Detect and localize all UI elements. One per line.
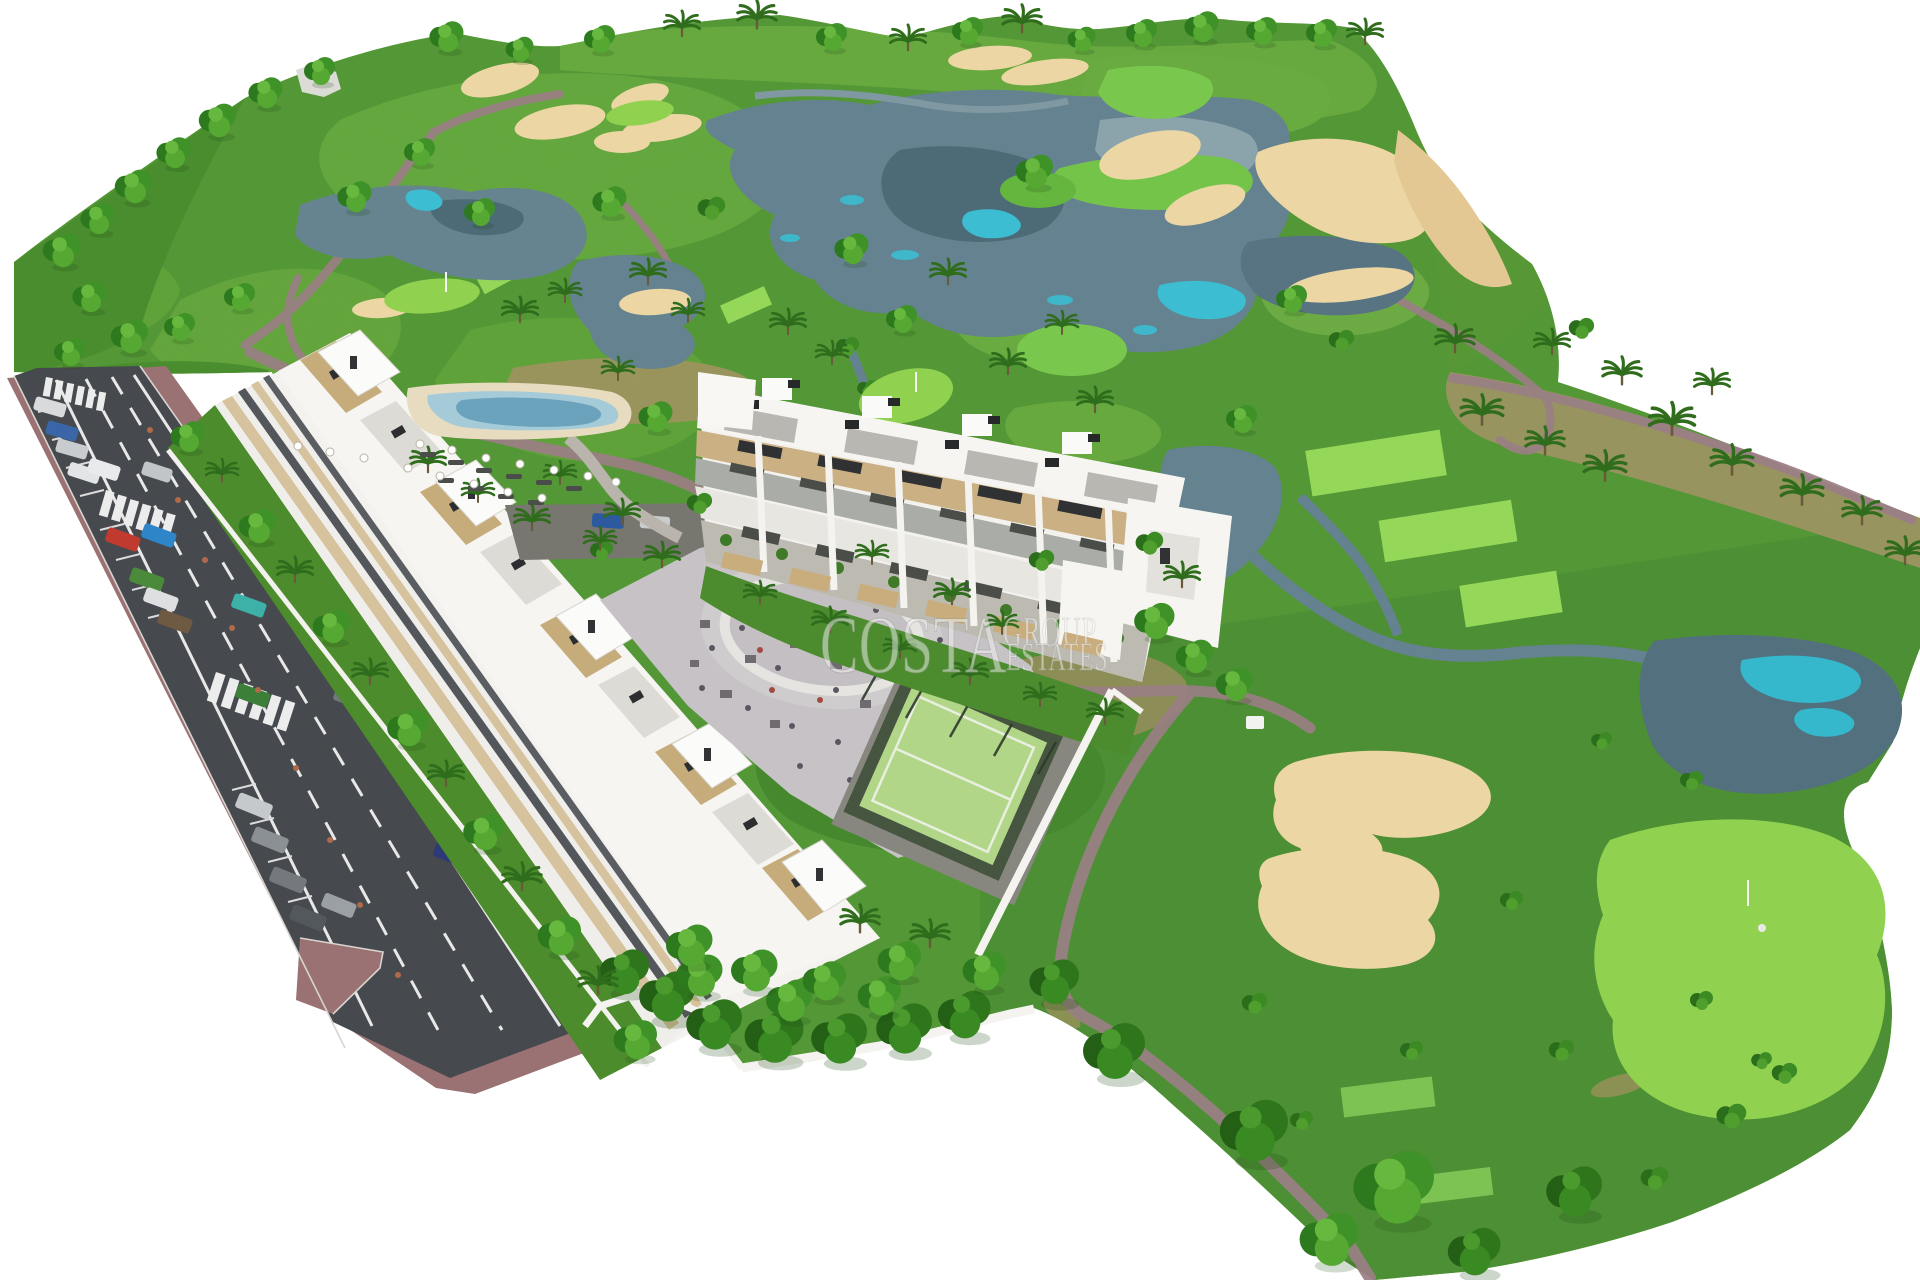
svg-text:ESTATES: ESTATES xyxy=(1006,636,1108,680)
svg-text:COSTA: COSTA xyxy=(820,600,1007,690)
